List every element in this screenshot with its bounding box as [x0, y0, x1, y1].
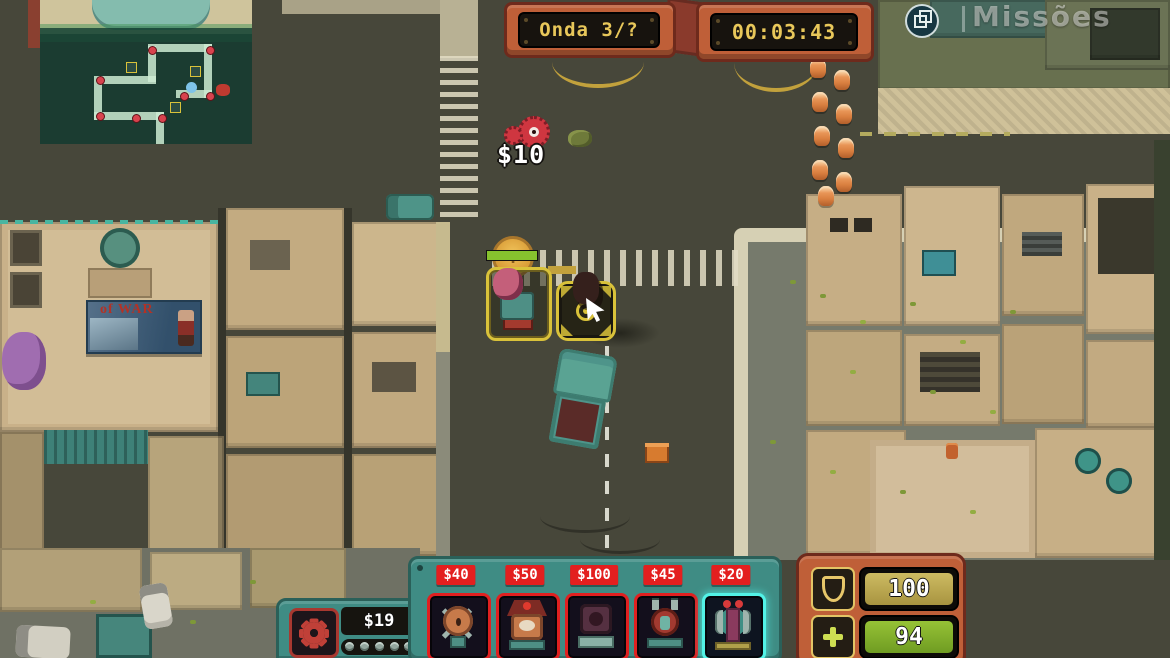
timer-panel: 00:03:43	[696, 2, 874, 62]
money-panel: $19	[276, 598, 428, 658]
shield-bar: 100	[859, 567, 959, 611]
building-roof	[352, 222, 438, 326]
shop-card-tower-1[interactable]	[427, 593, 491, 658]
mutant-blob	[2, 332, 46, 390]
tower-price: $50	[505, 565, 544, 585]
minimap-enemy	[206, 46, 215, 55]
building-roof	[806, 194, 902, 326]
slot-dot	[360, 642, 369, 651]
health-bar-small	[486, 250, 538, 261]
crosswalk-vertical	[440, 56, 478, 218]
copy-icon-back	[919, 10, 932, 23]
rust-sliver	[28, 0, 40, 48]
minimap-tower	[126, 62, 137, 73]
roof-grill	[1022, 232, 1062, 256]
tower-sprite-eye	[456, 618, 461, 626]
traffic-cone	[836, 104, 852, 124]
game-screen: of WAR	[0, 0, 1170, 658]
tower-sprite-neck	[450, 636, 466, 648]
health-bar-small-fill	[487, 251, 537, 260]
roof-grate	[10, 230, 42, 266]
money-display: $19	[341, 607, 417, 635]
shop-card-tower-3[interactable]	[565, 593, 629, 658]
tower-sprite-claw	[743, 610, 751, 634]
missions-watermark[interactable]: Missões	[972, 0, 1112, 33]
billboard-art	[90, 318, 138, 350]
floating-reward-text: $10	[497, 140, 545, 169]
minimap[interactable]	[40, 28, 252, 144]
placed-tower-tile[interactable]	[486, 267, 552, 341]
health-bar: 94	[859, 615, 959, 658]
wave-panel: Onda 3/?	[504, 2, 676, 58]
tower-price: $45	[643, 565, 682, 585]
awning	[44, 430, 148, 464]
curb	[734, 242, 748, 560]
alley	[344, 208, 352, 558]
building-roof	[352, 454, 438, 556]
curb	[436, 352, 450, 560]
building-roof	[148, 436, 224, 556]
lane-dash	[548, 266, 576, 274]
tower-sprite-core	[660, 616, 670, 630]
window-copy-button[interactable]	[905, 4, 939, 38]
roof-hatch	[372, 362, 416, 392]
slot-dot	[345, 642, 354, 651]
tower-sprite-prong	[652, 598, 659, 610]
tower-sprite-mouth	[519, 620, 535, 631]
upgrade-slots	[341, 639, 417, 655]
shop-card-tower-5[interactable]	[702, 593, 766, 658]
building-roof	[806, 330, 902, 426]
building-roof	[1002, 324, 1084, 424]
timer-value: 00:03:43	[732, 20, 836, 44]
water-tank	[1106, 468, 1132, 494]
building-roof	[226, 454, 344, 556]
slot-dot	[390, 642, 399, 651]
tower-sprite-prong	[671, 598, 678, 610]
roof-grill	[920, 352, 980, 392]
tower-sprite-spark	[523, 602, 531, 610]
minimap-path	[98, 76, 156, 84]
roof-window	[854, 218, 872, 232]
timer-panel-display: 00:03:43	[710, 13, 858, 51]
building-roof	[226, 336, 344, 448]
tile-corner	[599, 286, 611, 298]
alley	[218, 208, 226, 558]
panel-screw	[417, 565, 423, 571]
roof-vent	[246, 372, 280, 396]
bush	[568, 130, 592, 147]
minimap-enemy	[158, 114, 167, 123]
tower-shop-panel: $40 $50 $100 $45 $20	[408, 556, 782, 658]
crate	[645, 443, 669, 463]
lane-marking	[860, 132, 1010, 136]
roof-hatch	[88, 268, 152, 298]
roof-vent	[922, 250, 956, 276]
tower-price: $100	[570, 565, 618, 585]
tower-sprite-orb	[723, 600, 731, 608]
buildable-outline	[0, 220, 218, 224]
minimap-enemy	[96, 76, 105, 85]
money-value: $19	[364, 611, 395, 631]
building-roof	[0, 548, 142, 612]
minimap-splat	[216, 84, 230, 96]
truck	[540, 347, 622, 453]
building-courtyard	[1098, 198, 1158, 274]
billboard: of WAR	[86, 300, 202, 354]
roof-window	[830, 218, 848, 232]
skid-mark	[580, 525, 660, 554]
tile-corner	[561, 324, 573, 336]
tile-corner	[561, 286, 573, 298]
traffic-cone	[814, 126, 830, 146]
sidewalk	[878, 88, 1170, 134]
shop-card-tower-2[interactable]	[496, 593, 560, 658]
tower-head	[493, 268, 523, 300]
water-tower	[100, 228, 140, 268]
missions-divider	[962, 6, 965, 32]
roof-grate	[10, 272, 42, 308]
barrel	[946, 443, 958, 459]
minimap-enemy	[132, 114, 141, 123]
traffic-cone	[834, 70, 850, 90]
billboard-text: of WAR	[100, 302, 154, 318]
tower-sprite-base	[715, 642, 751, 650]
building-roof	[0, 432, 44, 556]
parked-car-teal	[386, 194, 434, 220]
tower-price: $40	[436, 565, 475, 585]
minimap-player-dot	[186, 82, 197, 93]
minimap-tower	[170, 102, 181, 113]
placement-tile[interactable]	[556, 281, 616, 341]
abandoned-car	[15, 625, 71, 658]
tower-sprite-column	[726, 608, 740, 642]
health-iconbox	[811, 615, 855, 658]
sidewalk	[282, 0, 440, 14]
minimap-enemy	[96, 112, 105, 121]
minimap-enemy	[206, 92, 215, 101]
shield-value: 100	[861, 569, 957, 609]
tower-sprite-base	[509, 640, 545, 650]
enemy-shadow-creature	[573, 272, 599, 304]
gear-icon	[297, 616, 331, 650]
health-value: 94	[861, 617, 957, 657]
minimap-tower	[190, 66, 201, 77]
traffic-cone	[818, 186, 834, 206]
grass-tuft	[790, 280, 796, 284]
curb	[436, 222, 450, 352]
billboard-character	[178, 310, 194, 346]
minimap-path	[148, 44, 212, 52]
tower-sprite-base	[647, 638, 683, 648]
tower-price: $20	[711, 565, 750, 585]
tower-sprite-core	[589, 612, 603, 626]
status-panel: 100 94	[796, 553, 966, 658]
wave-label: Onda 3/?	[539, 19, 639, 41]
building-roof	[1035, 428, 1170, 558]
settings-button[interactable]	[289, 608, 339, 658]
traffic-cone	[836, 172, 852, 192]
tower-sprite-orb	[735, 600, 743, 608]
water-tank	[1075, 448, 1101, 474]
shield-iconbox	[811, 567, 855, 611]
tree-strip	[1154, 140, 1170, 560]
shop-card-tower-4[interactable]	[634, 593, 698, 658]
tile-corner	[599, 324, 611, 336]
traffic-cone	[812, 160, 828, 180]
tower-sprite-base	[578, 636, 614, 648]
sidewalk	[440, 0, 478, 58]
traffic-cone	[812, 92, 828, 112]
shield-icon	[822, 576, 845, 602]
enemy-eye	[529, 127, 539, 137]
minimap-enemy	[180, 92, 189, 101]
health-cross-icon	[823, 627, 843, 647]
traffic-cone	[838, 138, 854, 158]
minimap-enemy	[148, 46, 157, 55]
roof-hatch	[250, 240, 290, 270]
tower-sprite-claw	[715, 610, 723, 634]
wave-panel-display: Onda 3/?	[518, 12, 660, 48]
slot-dot	[375, 642, 384, 651]
truck-cargo	[555, 399, 599, 443]
